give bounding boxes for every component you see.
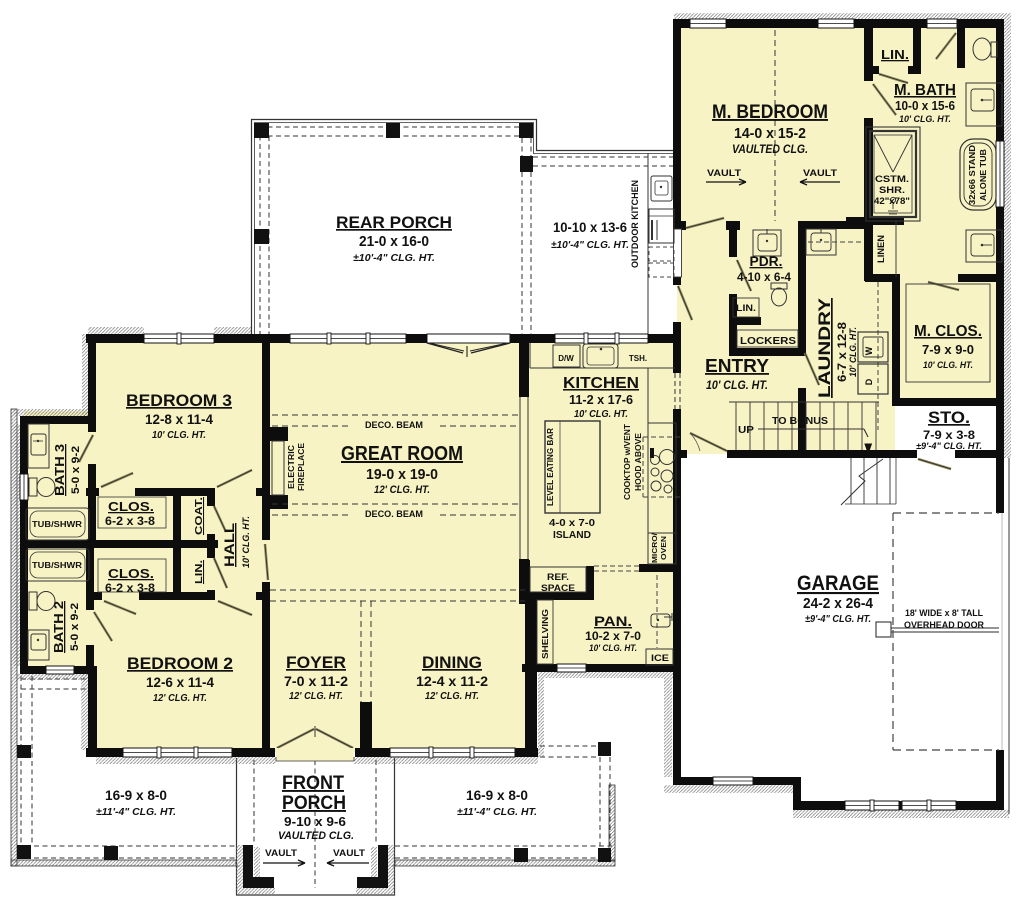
svg-text:CSTM.: CSTM. <box>875 174 909 185</box>
svg-text:BEDROOM 2: BEDROOM 2 <box>127 654 233 673</box>
svg-text:6-2 x 3-8: 6-2 x 3-8 <box>105 583 156 595</box>
svg-text:14-0 x 15-2: 14-0 x 15-2 <box>734 125 806 142</box>
svg-text:4-10 x 6-4: 4-10 x 6-4 <box>737 272 792 284</box>
svg-text:10' CLG. HT.: 10' CLG. HT. <box>923 360 973 371</box>
svg-text:M. BEDROOM: M. BEDROOM <box>712 102 828 123</box>
svg-text:10-10 x 13-6: 10-10 x 13-6 <box>553 220 627 235</box>
svg-text:32x66 STAND: 32x66 STAND <box>967 145 977 205</box>
svg-text:LOCKERS: LOCKERS <box>740 335 796 347</box>
svg-text:GREAT ROOM: GREAT ROOM <box>341 443 463 465</box>
svg-text:±9'-4" CLG. HT.: ±9'-4" CLG. HT. <box>805 613 871 625</box>
svg-text:12' CLG. HT.: 12' CLG. HT. <box>425 690 479 702</box>
svg-text:24-2 x 26-4: 24-2 x 26-4 <box>803 596 873 612</box>
svg-text:FOYER: FOYER <box>286 653 346 672</box>
svg-text:M. BATH: M. BATH <box>894 82 956 99</box>
svg-text:TSH.: TSH. <box>629 354 647 363</box>
svg-text:12' CLG. HT.: 12' CLG. HT. <box>289 690 343 702</box>
svg-text:7-0 x 11-2: 7-0 x 11-2 <box>284 673 348 689</box>
svg-text:CLOS.: CLOS. <box>108 566 154 581</box>
svg-text:12-6 x 11-4: 12-6 x 11-4 <box>146 674 214 690</box>
svg-text:42"x78": 42"x78" <box>874 196 910 207</box>
svg-text:D: D <box>864 378 874 385</box>
svg-text:FRONT: FRONT <box>282 773 344 794</box>
svg-text:12-4 x 11-2: 12-4 x 11-2 <box>416 673 488 689</box>
svg-text:M. CLOS.: M. CLOS. <box>914 323 982 340</box>
svg-text:BEDROOM 3: BEDROOM 3 <box>126 391 232 410</box>
svg-text:SHELVING: SHELVING <box>540 609 550 659</box>
svg-text:10' CLG. HT.: 10' CLG. HT. <box>589 643 637 654</box>
svg-text:LINEN: LINEN <box>876 235 887 263</box>
svg-text:BATH 2: BATH 2 <box>51 601 66 653</box>
svg-text:LAUNDRY: LAUNDRY <box>815 297 834 398</box>
svg-text:12-8 x 11-4: 12-8 x 11-4 <box>145 411 213 427</box>
svg-text:STO.: STO. <box>928 408 970 427</box>
svg-text:VAULT: VAULT <box>803 168 837 179</box>
svg-text:TUB/SHWR: TUB/SHWR <box>32 520 82 529</box>
svg-text:±9'-4" CLG. HT.: ±9'-4" CLG. HT. <box>916 441 982 452</box>
svg-text:REF.: REF. <box>547 572 569 583</box>
svg-text:21-0 x 16-0: 21-0 x 16-0 <box>359 234 429 250</box>
svg-text:COOKTOP w/VENT: COOKTOP w/VENT <box>623 424 632 500</box>
svg-text:±10'-4" CLG. HT.: ±10'-4" CLG. HT. <box>353 252 435 264</box>
svg-text:7-9 x 3-8: 7-9 x 3-8 <box>923 428 975 442</box>
svg-text:±11'-4" CLG. HT.: ±11'-4" CLG. HT. <box>96 806 176 818</box>
svg-text:FIREPLACE: FIREPLACE <box>297 442 306 491</box>
svg-text:±11'-4" CLG. HT.: ±11'-4" CLG. HT. <box>457 806 537 818</box>
svg-text:7-9 x 9-0: 7-9 x 9-0 <box>922 343 974 357</box>
svg-text:10' CLG. HT.: 10' CLG. HT. <box>241 516 252 568</box>
svg-text:5-0 x 9-2: 5-0 x 9-2 <box>69 603 81 651</box>
svg-text:12' CLG. HT.: 12' CLG. HT. <box>374 484 430 496</box>
svg-text:MICRO/: MICRO/ <box>652 533 659 563</box>
svg-text:PORCH: PORCH <box>282 793 346 814</box>
svg-text:TUB/SHWR: TUB/SHWR <box>32 561 82 570</box>
svg-text:5-0 x 9-2: 5-0 x 9-2 <box>70 446 82 494</box>
svg-text:OVERHEAD DOOR: OVERHEAD DOOR <box>904 620 984 631</box>
svg-text:10' CLG. HT.: 10' CLG. HT. <box>706 380 768 392</box>
svg-text:16-9 x 8-0: 16-9 x 8-0 <box>105 788 167 803</box>
svg-text:10' CLG. HT.: 10' CLG. HT. <box>152 429 206 441</box>
svg-text:UP: UP <box>738 425 754 436</box>
svg-text:DECO. BEAM: DECO. BEAM <box>365 509 423 520</box>
svg-text:LIN.: LIN. <box>193 560 205 584</box>
svg-text:COAT.: COAT. <box>193 497 205 535</box>
svg-text:10-0 x 15-6: 10-0 x 15-6 <box>895 99 955 113</box>
svg-text:19-0 x 19-0: 19-0 x 19-0 <box>366 466 438 483</box>
svg-text:HOOD ABOVE: HOOD ABOVE <box>634 432 643 491</box>
svg-text:BATH 3: BATH 3 <box>52 444 67 496</box>
svg-text:TO BONUS: TO BONUS <box>772 416 828 427</box>
svg-text:CLOS.: CLOS. <box>108 499 154 514</box>
svg-text:4-0 x 7-0: 4-0 x 7-0 <box>549 517 595 529</box>
svg-text:HALL: HALL <box>221 522 237 567</box>
svg-text:18' WIDE x 8' TALL: 18' WIDE x 8' TALL <box>905 608 983 619</box>
svg-text:VAULT: VAULT <box>265 848 298 858</box>
svg-text:16-9 x 8-0: 16-9 x 8-0 <box>466 788 528 803</box>
svg-text:D/W: D/W <box>558 354 574 363</box>
svg-text:9-10 x 9-6: 9-10 x 9-6 <box>284 814 346 829</box>
svg-text:6-2 x 3-8: 6-2 x 3-8 <box>105 516 156 528</box>
svg-text:GARAGE: GARAGE <box>797 572 879 595</box>
svg-text:SPACE: SPACE <box>541 583 575 594</box>
svg-text:±10'-4" CLG. HT.: ±10'-4" CLG. HT. <box>551 240 629 251</box>
svg-text:10' CLG. HT.: 10' CLG. HT. <box>899 114 951 125</box>
svg-text:LEVEL EATING BAR: LEVEL EATING BAR <box>546 428 555 506</box>
svg-text:VAULT: VAULT <box>707 168 741 179</box>
svg-text:LIN.: LIN. <box>881 47 909 62</box>
svg-text:12' CLG. HT.: 12' CLG. HT. <box>153 692 207 704</box>
svg-text:REAR PORCH: REAR PORCH <box>336 213 452 232</box>
svg-text:11-2 x 17-6: 11-2 x 17-6 <box>569 392 633 407</box>
svg-text:OUTDOOR KITCHEN: OUTDOOR KITCHEN <box>630 180 640 268</box>
svg-text:10-2 x 7-0: 10-2 x 7-0 <box>585 629 641 643</box>
svg-text:PAN.: PAN. <box>594 613 632 629</box>
svg-text:DINING: DINING <box>422 653 482 672</box>
svg-text:KITCHEN: KITCHEN <box>563 375 639 392</box>
svg-text:PDR.: PDR. <box>750 254 783 269</box>
svg-text:6-7 x 12-8: 6-7 x 12-8 <box>835 322 849 382</box>
svg-text:ELECTRIC: ELECTRIC <box>287 445 296 489</box>
svg-text:W: W <box>864 346 874 355</box>
svg-text:VAULT: VAULT <box>333 848 366 858</box>
svg-text:ENTRY: ENTRY <box>705 356 769 376</box>
svg-text:ISLAND: ISLAND <box>553 529 591 541</box>
svg-text:OVEN: OVEN <box>661 536 668 560</box>
svg-text:VAULTED CLG.: VAULTED CLG. <box>732 144 808 156</box>
svg-text:10' CLG. HT.: 10' CLG. HT. <box>574 409 628 420</box>
svg-text:DECO. BEAM: DECO. BEAM <box>365 420 423 431</box>
svg-text:10' CLG. HT.: 10' CLG. HT. <box>848 327 858 377</box>
svg-text:ALONE TUB: ALONE TUB <box>978 149 988 201</box>
svg-text:LIN.: LIN. <box>736 303 756 314</box>
svg-text:SHR.: SHR. <box>879 185 905 196</box>
svg-text:VAULTED CLG.: VAULTED CLG. <box>278 830 354 842</box>
svg-text:ICE: ICE <box>651 653 669 663</box>
